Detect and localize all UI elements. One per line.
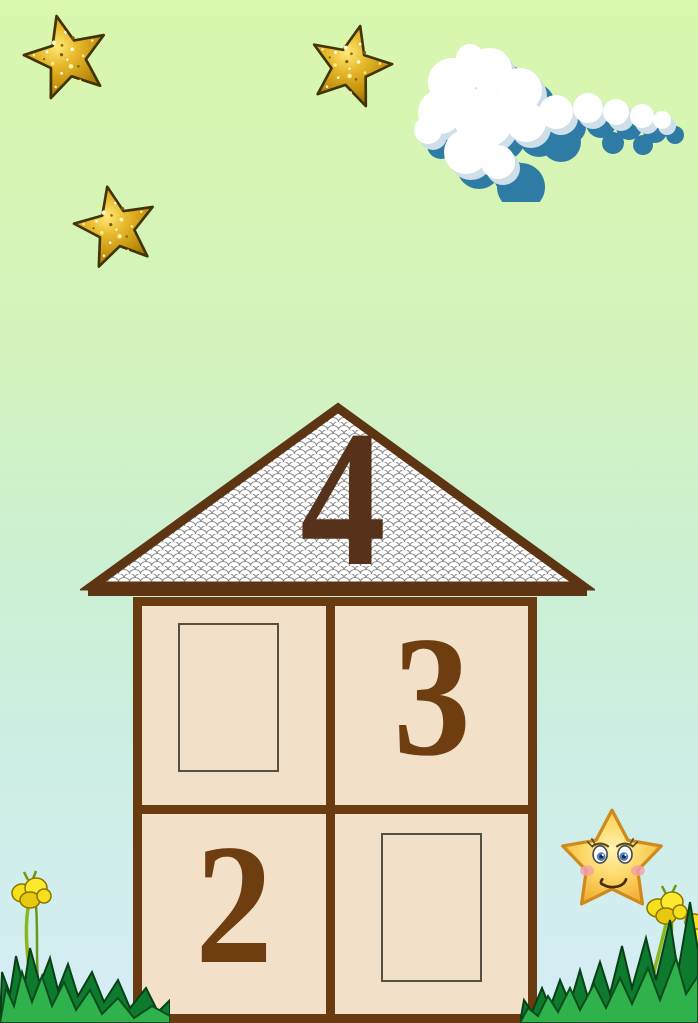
grass-tuft-icon: [520, 850, 698, 1023]
cloud-icon: [398, 32, 698, 202]
answer-box-top-left[interactable]: [178, 623, 279, 772]
room-top-left: [142, 606, 326, 805]
slide-canvas: 4 3 2: [0, 0, 698, 1023]
room-bottom-right: [335, 814, 528, 1014]
answer-box-bottom-right[interactable]: [381, 833, 482, 982]
grass-tuft-icon: [0, 860, 170, 1023]
glitter-star-icon: [296, 13, 403, 122]
glitter-star-icon: [63, 172, 169, 284]
room-number: 3: [393, 611, 470, 783]
buttercup-flower-icon: [12, 878, 51, 908]
roof-number: 4: [273, 402, 414, 597]
number-house-body: 3 2: [133, 597, 537, 1023]
room-top-right: 3: [335, 606, 528, 805]
glitter-star-icon: [12, 2, 122, 113]
room-number: 2: [195, 819, 272, 991]
